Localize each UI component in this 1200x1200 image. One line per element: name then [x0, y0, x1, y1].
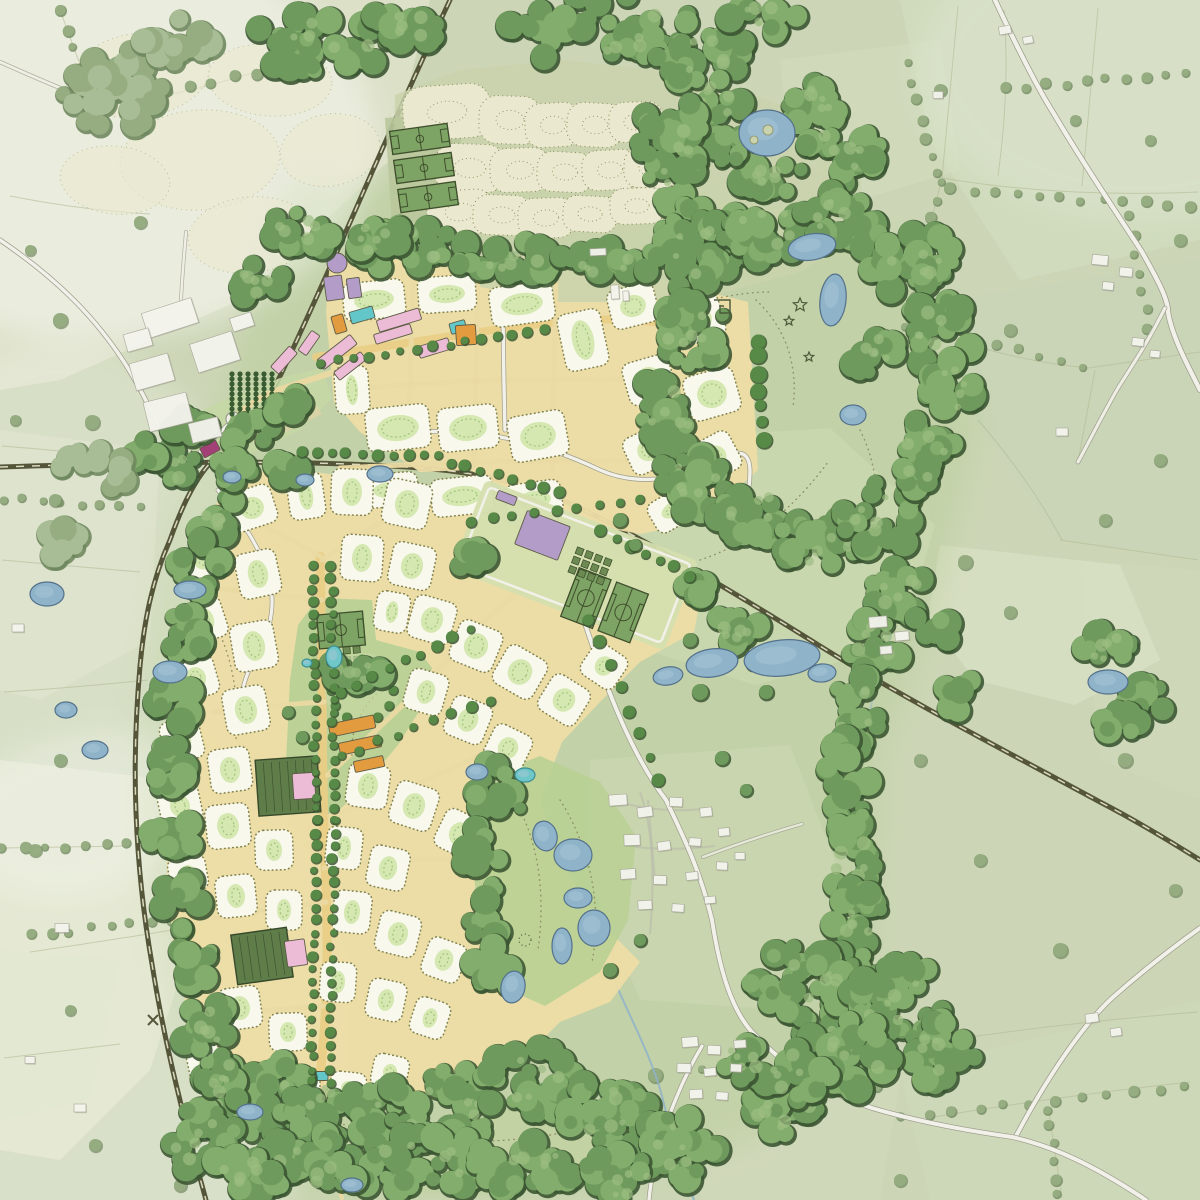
existing-building: [1119, 267, 1134, 279]
existing-building: [12, 624, 25, 633]
existing-building: [623, 291, 631, 303]
sports-pitch: [390, 123, 459, 212]
masterplan-svg: [0, 0, 1200, 1200]
existing-building: [638, 900, 654, 911]
orchard-row-tree: [245, 376, 250, 381]
orchard-row-tree: [269, 376, 274, 381]
orchard-row-tree: [253, 401, 258, 406]
housing-block: [228, 619, 280, 674]
existing-building: [1102, 281, 1115, 291]
existing-building: [895, 631, 911, 642]
housing-block: [386, 540, 438, 592]
existing-building: [689, 838, 703, 848]
existing-building: [704, 1067, 718, 1077]
lake: [367, 466, 393, 482]
existing-building: [707, 1045, 722, 1056]
existing-building: [880, 645, 894, 655]
orchard-row-tree: [245, 401, 250, 406]
existing-building: [716, 862, 728, 872]
existing-building: [704, 896, 717, 905]
orchard-row-tree: [229, 371, 234, 376]
orchard-row-tree: [229, 401, 234, 406]
teal-pond: [302, 659, 312, 667]
school-field: [231, 927, 293, 984]
lake: [296, 474, 314, 486]
orchard-row-tree: [237, 386, 242, 391]
existing-building: [611, 285, 621, 301]
housing-block: [254, 829, 293, 870]
lake: [578, 910, 610, 946]
orchard-row-tree: [237, 406, 242, 411]
orchard-row-tree: [253, 386, 258, 391]
orchard-row-tree: [245, 371, 250, 376]
existing-building: [1131, 337, 1145, 348]
lake: [552, 928, 572, 964]
housing-block: [204, 802, 252, 850]
existing-building: [637, 806, 654, 819]
orchard-row-tree: [245, 396, 250, 401]
community-building: [323, 275, 344, 301]
existing-building: [25, 1057, 36, 1065]
existing-building: [682, 1036, 700, 1049]
existing-building: [669, 797, 684, 808]
orchard-row-tree: [245, 381, 250, 386]
orchard-row-tree: [253, 391, 258, 396]
orchard-row-tree: [237, 401, 242, 406]
orchard-row-tree: [269, 371, 274, 376]
existing-building: [1110, 1027, 1123, 1038]
orchard-row-tree: [261, 391, 266, 396]
housing-block: [372, 589, 412, 634]
lake: [223, 471, 241, 483]
orchard-row-tree: [229, 376, 234, 381]
existing-building: [700, 807, 714, 819]
existing-building: [734, 1040, 748, 1050]
existing-building: [1056, 428, 1069, 437]
orchard-row-tree: [261, 376, 266, 381]
orchard-row-tree: [229, 386, 234, 391]
orchard-row-tree: [253, 371, 258, 376]
existing-building: [590, 248, 607, 257]
existing-building: [1091, 254, 1109, 267]
lake-island: [750, 136, 758, 144]
existing-building: [718, 827, 731, 837]
orchard-row-tree: [245, 406, 250, 411]
housing-block: [364, 843, 412, 892]
existing-building: [624, 834, 641, 847]
lake: [554, 839, 592, 871]
orchard-row-tree: [245, 386, 250, 391]
orchard-row-tree: [261, 371, 266, 376]
lake: [55, 702, 77, 718]
existing-building: [620, 868, 637, 880]
teal-pond: [515, 768, 535, 782]
orchard-row-tree: [237, 376, 242, 381]
lake: [341, 1178, 363, 1192]
existing-building: [869, 616, 889, 630]
orchard-row-tree: [261, 381, 266, 386]
housing-block: [266, 890, 302, 930]
lake: [153, 661, 187, 683]
existing-building: [672, 904, 686, 914]
existing-building: [1150, 350, 1162, 359]
orchard-row-tree: [245, 391, 250, 396]
lake: [564, 888, 592, 908]
orchard-row-tree: [237, 391, 242, 396]
existing-building: [933, 92, 944, 100]
orchard-row-tree: [269, 386, 274, 391]
housing-block: [436, 403, 500, 453]
existing-building: [735, 853, 746, 861]
orchard-row-tree: [229, 406, 234, 411]
lake: [840, 405, 866, 425]
existing-building: [730, 1064, 742, 1074]
existing-building: [657, 841, 672, 853]
lake: [174, 581, 206, 599]
orchard-row-tree: [229, 381, 234, 386]
orchard-row-tree: [229, 411, 234, 416]
existing-building: [74, 1104, 87, 1113]
orchard-row-tree: [229, 396, 234, 401]
orchard-row-tree: [261, 386, 266, 391]
lake: [466, 764, 488, 780]
sports-pitch: [317, 611, 366, 649]
orchard-row-tree: [237, 381, 242, 386]
existing-building: [677, 1063, 692, 1074]
housing-block: [268, 1012, 307, 1051]
school-building: [292, 772, 316, 799]
housing-block: [363, 976, 408, 1023]
housing-block: [364, 403, 432, 453]
existing-building: [716, 1092, 730, 1102]
community-building: [346, 277, 362, 299]
existing-building: [55, 924, 70, 934]
lake: [82, 741, 108, 759]
housing-block: [319, 961, 358, 1003]
housing-block: [214, 873, 258, 919]
orchard-row-tree: [253, 376, 258, 381]
orchard-row-tree: [269, 381, 274, 386]
orchard-row-tree: [229, 391, 234, 396]
existing-building: [689, 1089, 704, 1100]
housing-block: [339, 534, 384, 583]
existing-building: [609, 794, 629, 807]
lake: [237, 1104, 263, 1120]
housing-block: [220, 684, 271, 737]
lake-island: [763, 125, 773, 135]
lake: [30, 582, 64, 606]
orchard-row-tree: [237, 371, 242, 376]
teal-pond: [326, 646, 342, 668]
existing-building: [653, 875, 667, 886]
school-building: [284, 939, 307, 968]
orchard-row-tree: [237, 396, 242, 401]
lake: [1088, 670, 1128, 694]
existing-building: [686, 871, 700, 882]
housing-block: [206, 745, 254, 794]
housing-block: [380, 477, 435, 532]
orchard-row-tree: [253, 396, 258, 401]
orchard-row-tree: [253, 381, 258, 386]
masterplan-map: [0, 0, 1200, 1200]
existing-building: [1085, 1013, 1100, 1025]
